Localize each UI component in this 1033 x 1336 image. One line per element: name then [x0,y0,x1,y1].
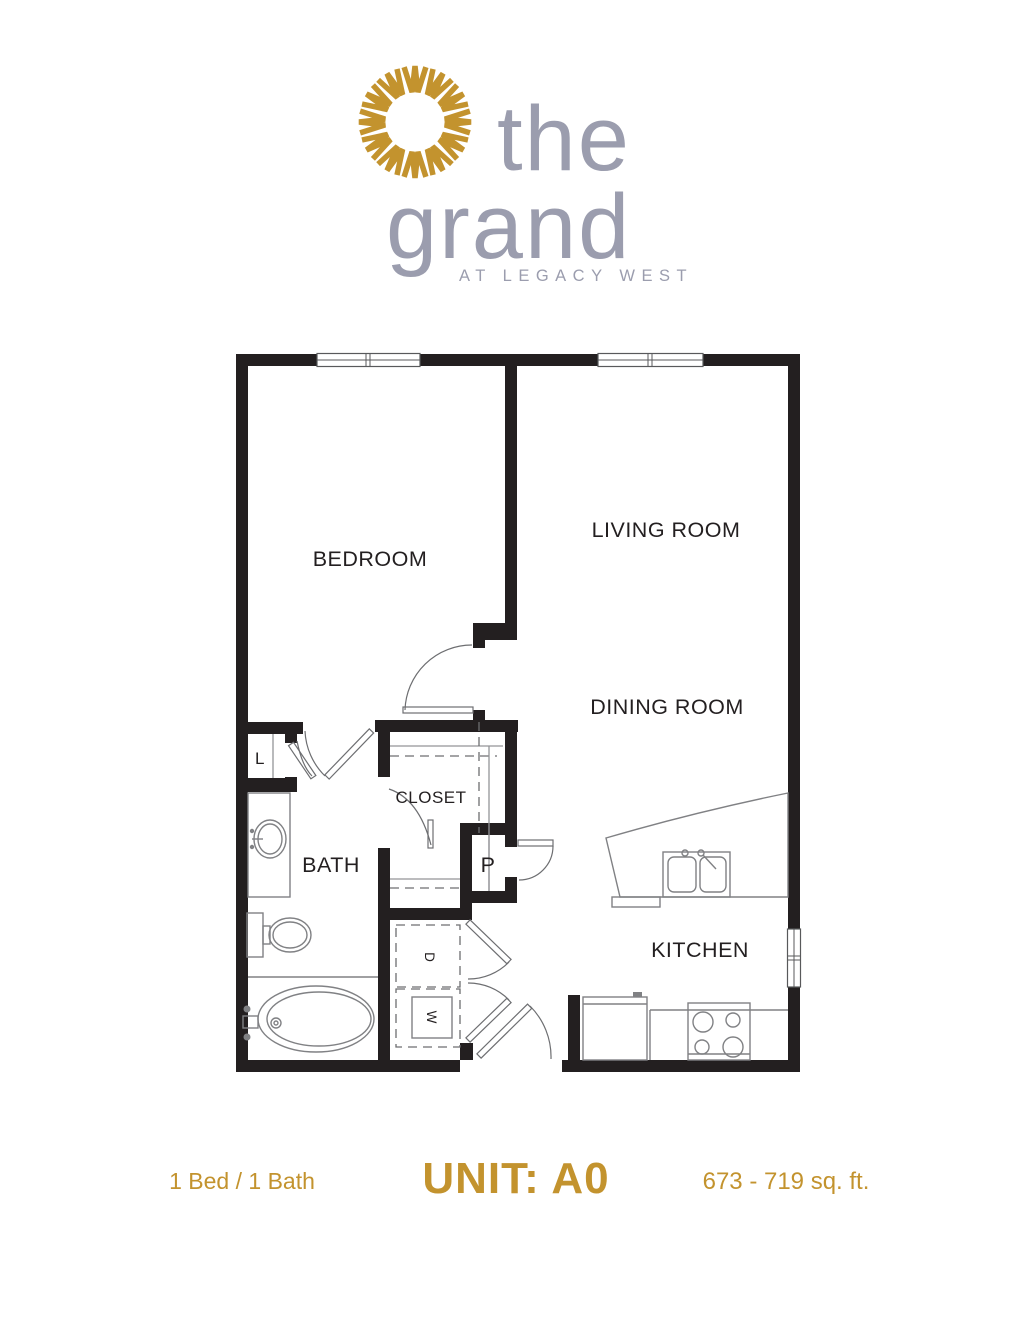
footer-bed-bath: 1 Bed / 1 Bath [169,1168,315,1194]
footer-unit-name: UNIT: A0 [422,1154,609,1203]
label-washer: W [424,1011,439,1024]
window-bedroom [317,354,420,367]
laundry-doors [466,920,511,1042]
logo-word-grand: grand [386,176,631,278]
label-dryer: D [422,952,437,962]
footer-square-footage: 673 - 719 sq. ft. [703,1168,870,1195]
refrigerator [583,992,647,1060]
bedroom-door [403,645,473,713]
room-label-bedroom: BEDROOM [313,547,428,571]
window-living [598,354,703,367]
room-label-closet: CLOSET [395,788,466,807]
bathtub [243,977,378,1052]
kitchen-counter-stove [650,1003,788,1060]
room-label-linen: L [255,749,265,768]
brand-logo: the grand AT LEGACY WEST [359,66,693,285]
pantry-door [518,840,553,880]
room-label-kitchen: KITCHEN [651,938,749,962]
sunburst-icon [359,66,471,178]
footer: 1 Bed / 1 Bath UNIT: A0 673 - 719 sq. ft… [169,1154,869,1203]
room-label-bath: BATH [302,853,360,877]
window-kitchen [788,929,801,987]
linen-door [289,741,316,779]
room-label-pantry: P [481,853,496,877]
bath-door [305,729,374,779]
floorplan-page: the grand AT LEGACY WEST [0,0,1033,1336]
toilet [247,913,311,957]
logo-tagline: AT LEGACY WEST [459,267,693,285]
entry-door [477,1004,551,1059]
room-label-living-room: LIVING ROOM [592,518,741,542]
floorplan-canvas: the grand AT LEGACY WEST [0,0,1033,1336]
logo-word-the: the [497,88,631,190]
bath-vanity-sink [248,793,290,897]
kitchen-island-sink [606,793,788,907]
room-label-dining-room: DINING ROOM [590,695,744,719]
